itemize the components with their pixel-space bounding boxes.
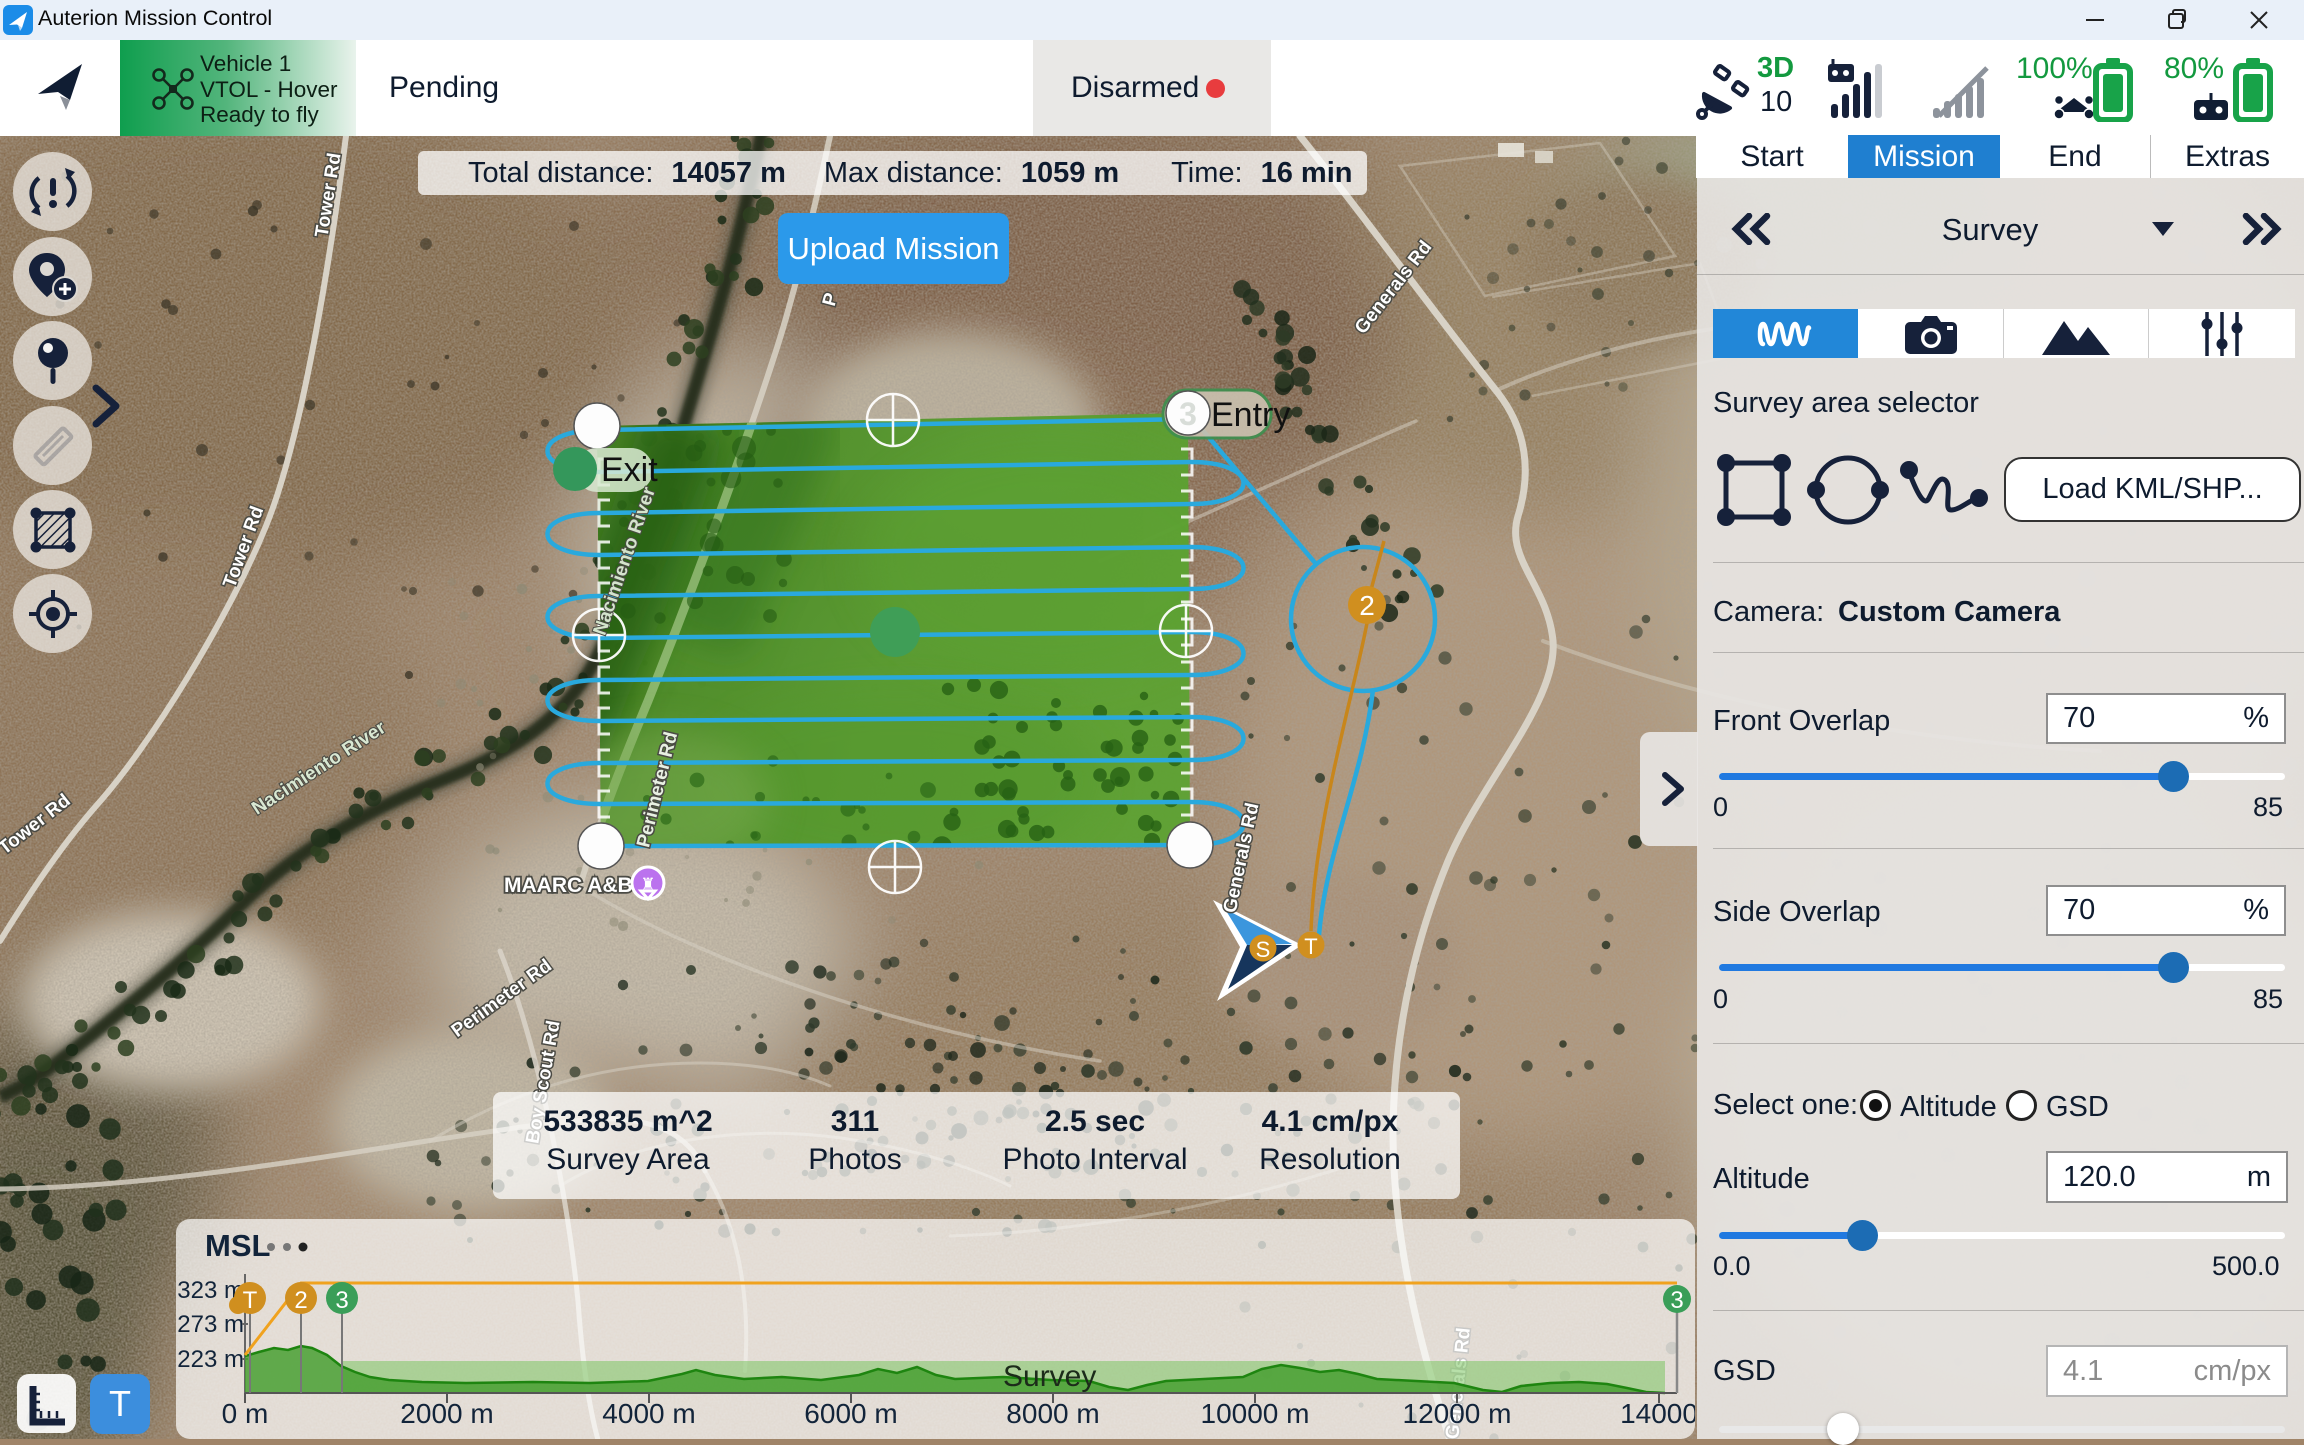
- svg-text:3: 3: [1670, 1287, 1683, 1314]
- svg-text:14000: 14000: [1620, 1398, 1695, 1429]
- svg-text:2: 2: [294, 1287, 307, 1314]
- svg-text:2: 2: [1359, 590, 1375, 621]
- svg-text:4000 m: 4000 m: [602, 1398, 695, 1429]
- svg-text:10000 m: 10000 m: [1201, 1398, 1310, 1429]
- svg-text:T: T: [1304, 934, 1317, 959]
- svg-text:3: 3: [335, 1287, 348, 1314]
- svg-text:12000 m: 12000 m: [1403, 1398, 1512, 1429]
- svg-text:2000 m: 2000 m: [400, 1398, 493, 1429]
- svg-text:MAARC A&B: MAARC A&B: [504, 874, 633, 897]
- svg-text:3: 3: [1179, 396, 1197, 432]
- svg-text:MSL: MSL: [205, 1228, 270, 1263]
- svg-text:♜: ♜: [640, 875, 655, 894]
- svg-text:273 m: 273 m: [177, 1311, 244, 1338]
- svg-text:6000 m: 6000 m: [804, 1398, 897, 1429]
- svg-text:Exit: Exit: [601, 451, 658, 489]
- svg-text:Entry: Entry: [1211, 396, 1290, 434]
- svg-text:Survey: Survey: [1003, 1360, 1096, 1393]
- svg-text:0 m: 0 m: [222, 1398, 269, 1429]
- svg-text:223 m: 223 m: [177, 1346, 244, 1373]
- svg-text:T: T: [243, 1287, 258, 1314]
- svg-text:S: S: [1256, 937, 1271, 962]
- svg-text:8000 m: 8000 m: [1006, 1398, 1099, 1429]
